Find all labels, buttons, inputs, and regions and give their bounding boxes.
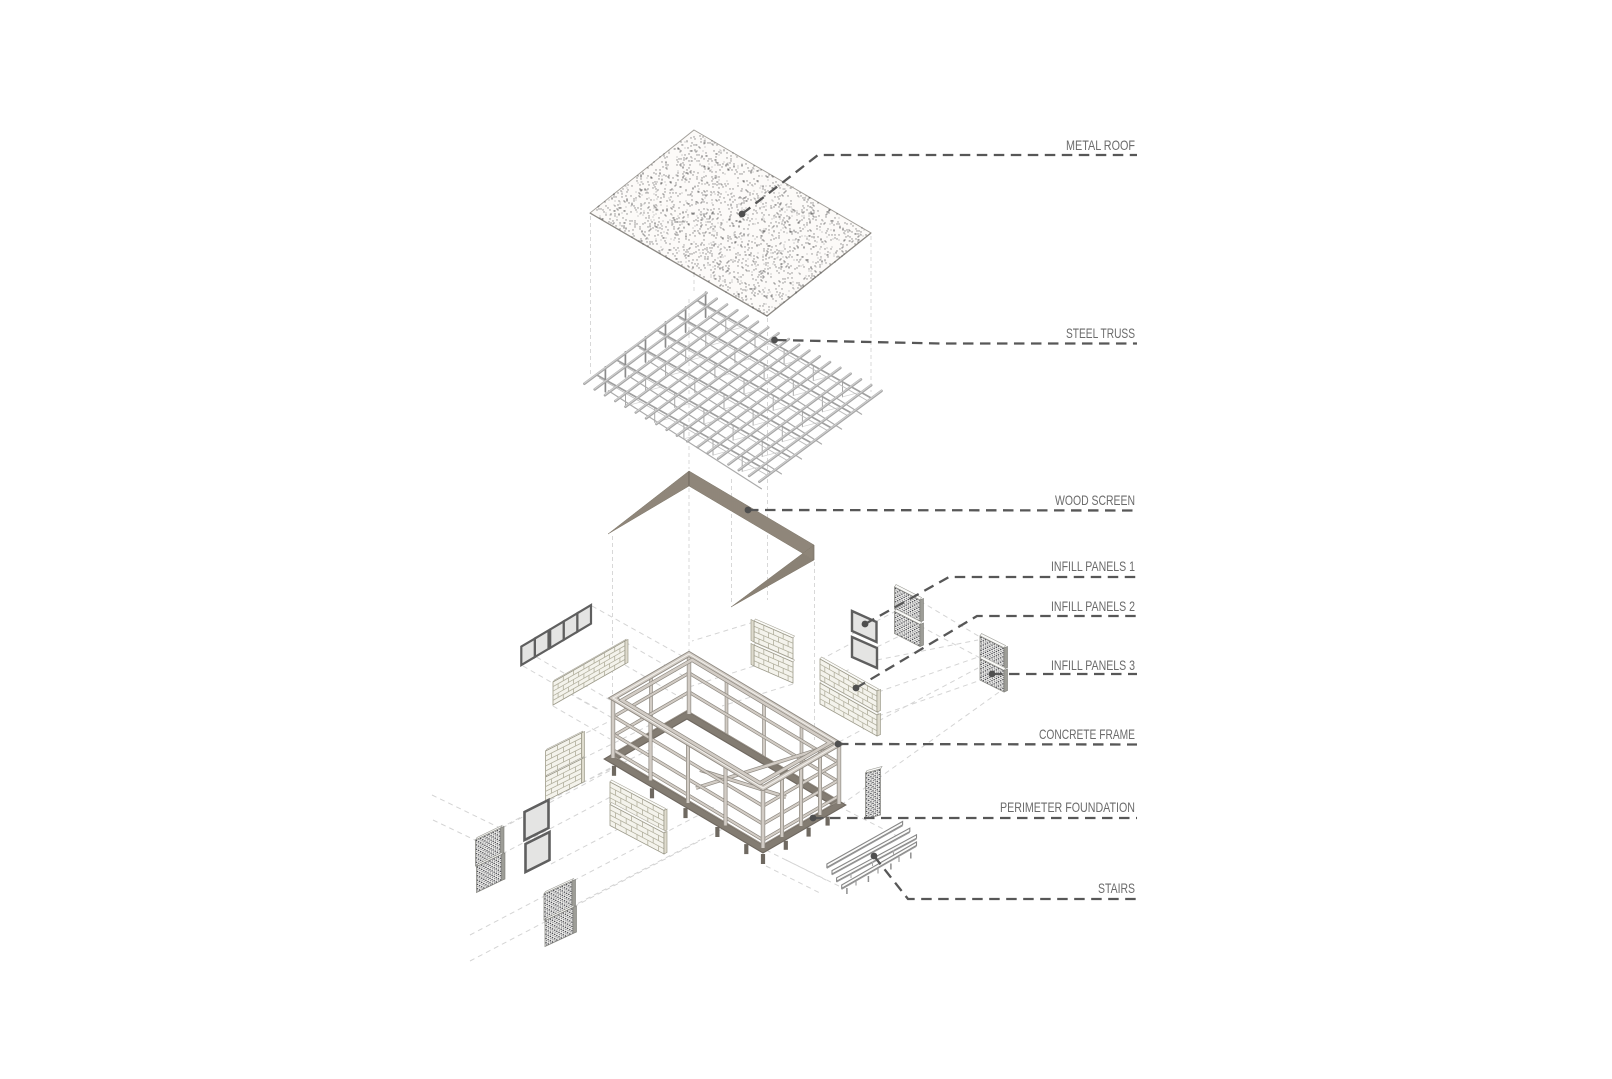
svg-text:STEEL TRUSS: STEEL TRUSS xyxy=(1066,326,1135,341)
svg-text:WOOD SCREEN: WOOD SCREEN xyxy=(1055,493,1135,508)
svg-text:INFILL PANELS 1: INFILL PANELS 1 xyxy=(1051,559,1135,574)
svg-text:STAIRS: STAIRS xyxy=(1098,881,1135,896)
svg-text:METAL ROOF: METAL ROOF xyxy=(1066,138,1135,153)
svg-text:PERIMETER FOUNDATION: PERIMETER FOUNDATION xyxy=(1000,800,1135,815)
svg-text:CONCRETE FRAME: CONCRETE FRAME xyxy=(1039,727,1135,742)
svg-text:INFILL PANELS 2: INFILL PANELS 2 xyxy=(1051,599,1135,614)
svg-text:INFILL PANELS 3: INFILL PANELS 3 xyxy=(1051,658,1135,673)
